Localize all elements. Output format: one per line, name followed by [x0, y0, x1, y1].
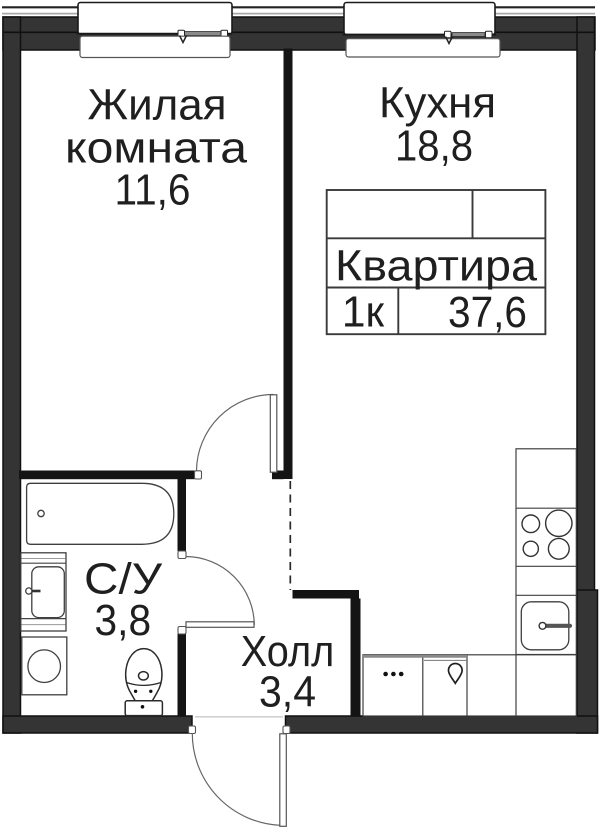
- svg-text:11,6: 11,6: [115, 166, 191, 215]
- svg-text:3,4: 3,4: [259, 668, 316, 717]
- svg-text:Квартира: Квартира: [335, 242, 538, 291]
- svg-text:18,8: 18,8: [395, 122, 473, 171]
- svg-text:Жилая: Жилая: [88, 81, 227, 130]
- svg-text:Кухня: Кухня: [379, 79, 496, 128]
- svg-text:1к: 1к: [342, 288, 385, 337]
- svg-text:37,6: 37,6: [448, 288, 527, 337]
- svg-text:3,8: 3,8: [95, 596, 152, 645]
